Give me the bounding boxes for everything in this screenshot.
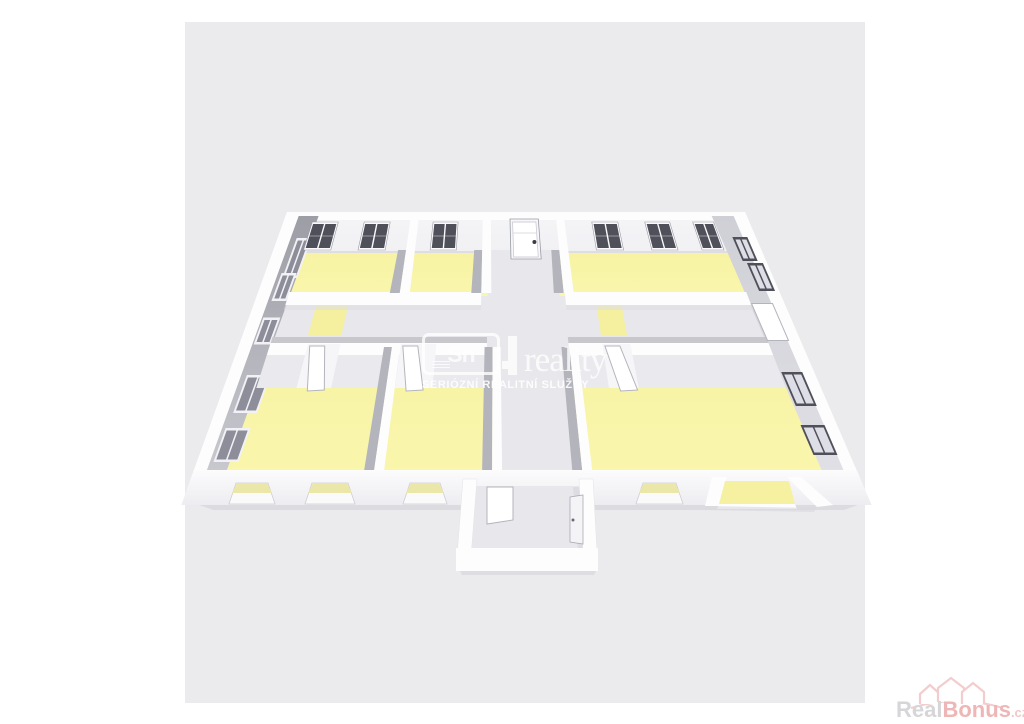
floorplan-render xyxy=(0,0,1024,724)
realbonus-text-real: Real xyxy=(896,697,942,722)
door-leaf xyxy=(307,346,324,391)
back-door xyxy=(510,219,541,259)
realbonus-logo: RealBonus.cz xyxy=(893,676,1024,722)
vestibule-open-door-leaf xyxy=(487,487,513,524)
door-handle-icon xyxy=(572,519,575,522)
realbonus-text-bonus: Bonus xyxy=(942,697,1010,722)
balcony-floor xyxy=(719,481,795,504)
door-handle-icon xyxy=(532,240,536,244)
realbonus-text-tld: .cz xyxy=(1011,705,1024,720)
door-leaf xyxy=(513,222,539,257)
vestibule-front-wall xyxy=(456,548,598,571)
realbonus-text: RealBonus.cz xyxy=(896,697,1024,722)
vestibule xyxy=(456,479,598,575)
page: Sn reality SERIÓZNÍ REALITNÍ SLUŽBY Real… xyxy=(0,0,1024,724)
